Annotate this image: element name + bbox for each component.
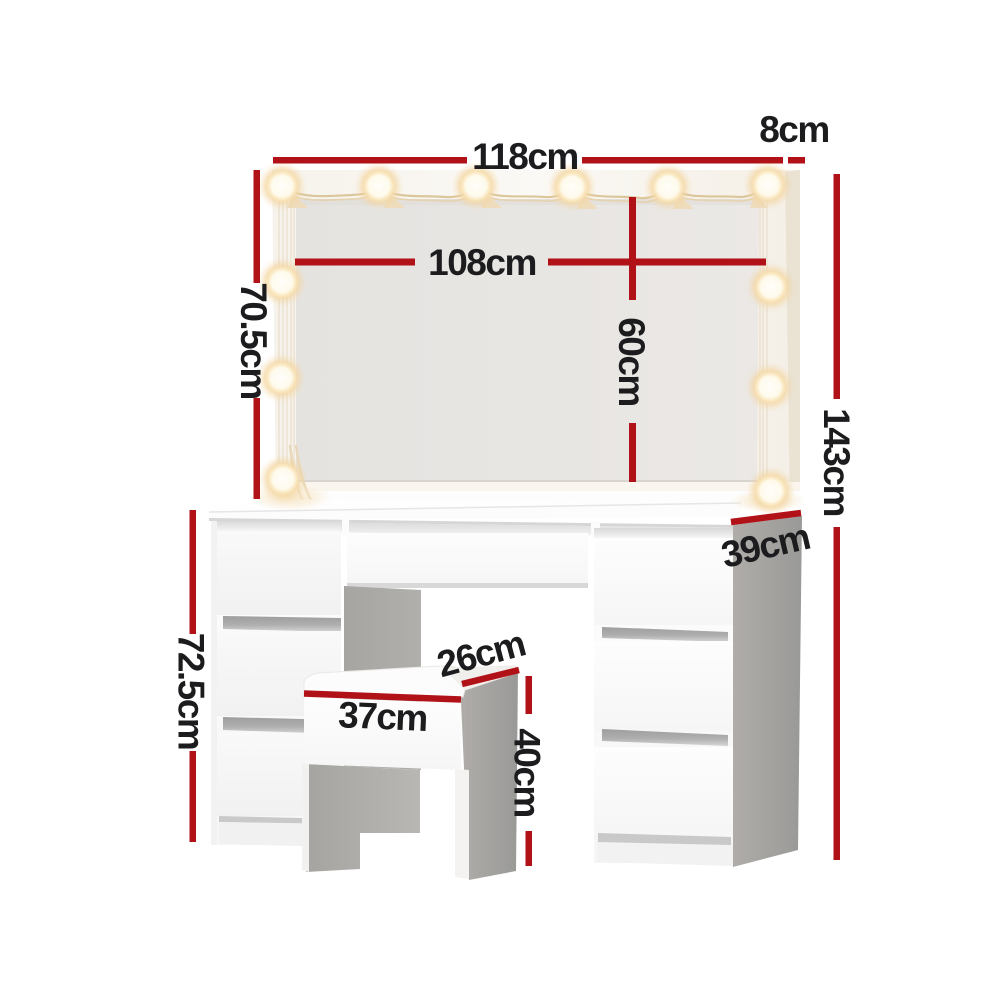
svg-text:8cm: 8cm: [759, 109, 829, 150]
svg-text:37cm: 37cm: [337, 694, 427, 739]
svg-text:70.5cm: 70.5cm: [233, 282, 274, 399]
svg-text:118cm: 118cm: [472, 136, 578, 177]
svg-text:40cm: 40cm: [507, 728, 548, 817]
svg-text:143cm: 143cm: [816, 408, 857, 516]
svg-text:72.5cm: 72.5cm: [171, 633, 212, 750]
svg-text:60cm: 60cm: [611, 317, 652, 406]
svg-text:108cm: 108cm: [428, 242, 536, 283]
